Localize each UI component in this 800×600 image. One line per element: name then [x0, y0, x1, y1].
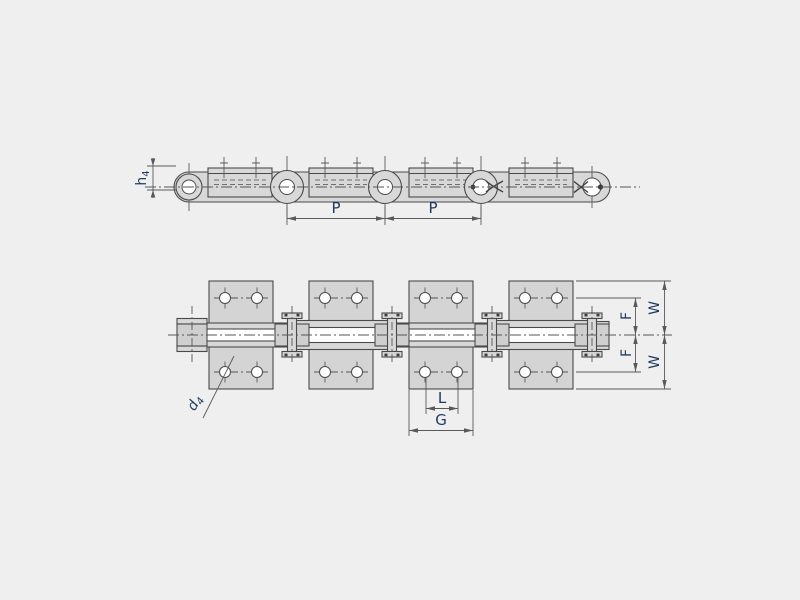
attachment-hole: [220, 367, 231, 378]
attachment-plate-side: [409, 168, 473, 197]
attachment-hole: [452, 367, 463, 378]
cotter-pin-mark: [497, 314, 500, 317]
attachment-plate-side: [208, 168, 272, 197]
attachment-plate-top: [309, 281, 373, 324]
cotter-pin-mark: [385, 354, 388, 357]
dim-label-F-bottom: F: [619, 349, 635, 357]
attachment-hole: [252, 293, 263, 304]
cotter-pin-mark: [397, 314, 400, 317]
drawing-background: [0, 0, 800, 600]
chain-attachment-technical-drawing: h4 P P: [0, 0, 800, 600]
attachment-plate-bottom: [309, 346, 373, 389]
dim-label-pitch-1: P: [331, 199, 340, 217]
cotter-pin-mark: [485, 314, 488, 317]
attachment-hole: [452, 293, 463, 304]
dim-label-F-top: F: [619, 312, 635, 320]
dim-label-G: G: [435, 411, 447, 429]
attachment-hole: [220, 293, 231, 304]
attachment-hole: [420, 367, 431, 378]
dim-label-W-top: W: [647, 301, 663, 315]
dim-label-pitch-2: P: [428, 199, 437, 217]
attachment-plate-side: [509, 168, 573, 197]
attachment-plate-top: [209, 281, 273, 324]
attachment-hole: [420, 293, 431, 304]
attachment-hole: [520, 367, 531, 378]
attachment-plate-top: [409, 281, 473, 324]
dim-label-W-bottom: W: [647, 355, 663, 369]
attachment-plate-bottom: [209, 346, 273, 389]
cotter-pin-mark: [297, 354, 300, 357]
attachment-plate-bottom: [509, 346, 573, 389]
cotter-pin-mark: [497, 354, 500, 357]
attachment-hole: [520, 293, 531, 304]
cotter-pin-mark: [585, 354, 588, 357]
cotter-pin-mark: [297, 314, 300, 317]
cotter-pin-mark: [385, 314, 388, 317]
attachment-hole: [552, 293, 563, 304]
cotter-pin-mark: [285, 354, 288, 357]
dim-label-L: L: [438, 389, 447, 407]
attachment-hole: [352, 293, 363, 304]
attachment-hole: [320, 367, 331, 378]
cotter-pin-mark: [597, 354, 600, 357]
attachment-plate-bottom: [409, 346, 473, 389]
cotter-pin-mark: [485, 354, 488, 357]
cotter-pin-mark: [597, 314, 600, 317]
attachment-plate-side: [309, 168, 373, 197]
cotter-pin-mark: [585, 314, 588, 317]
attachment-hole: [552, 367, 563, 378]
cotter-pin-mark: [285, 314, 288, 317]
cotter-pin-mark: [397, 354, 400, 357]
attachment-hole: [320, 293, 331, 304]
attachment-hole: [252, 367, 263, 378]
attachment-plate-top: [509, 281, 573, 324]
attachment-hole: [352, 367, 363, 378]
